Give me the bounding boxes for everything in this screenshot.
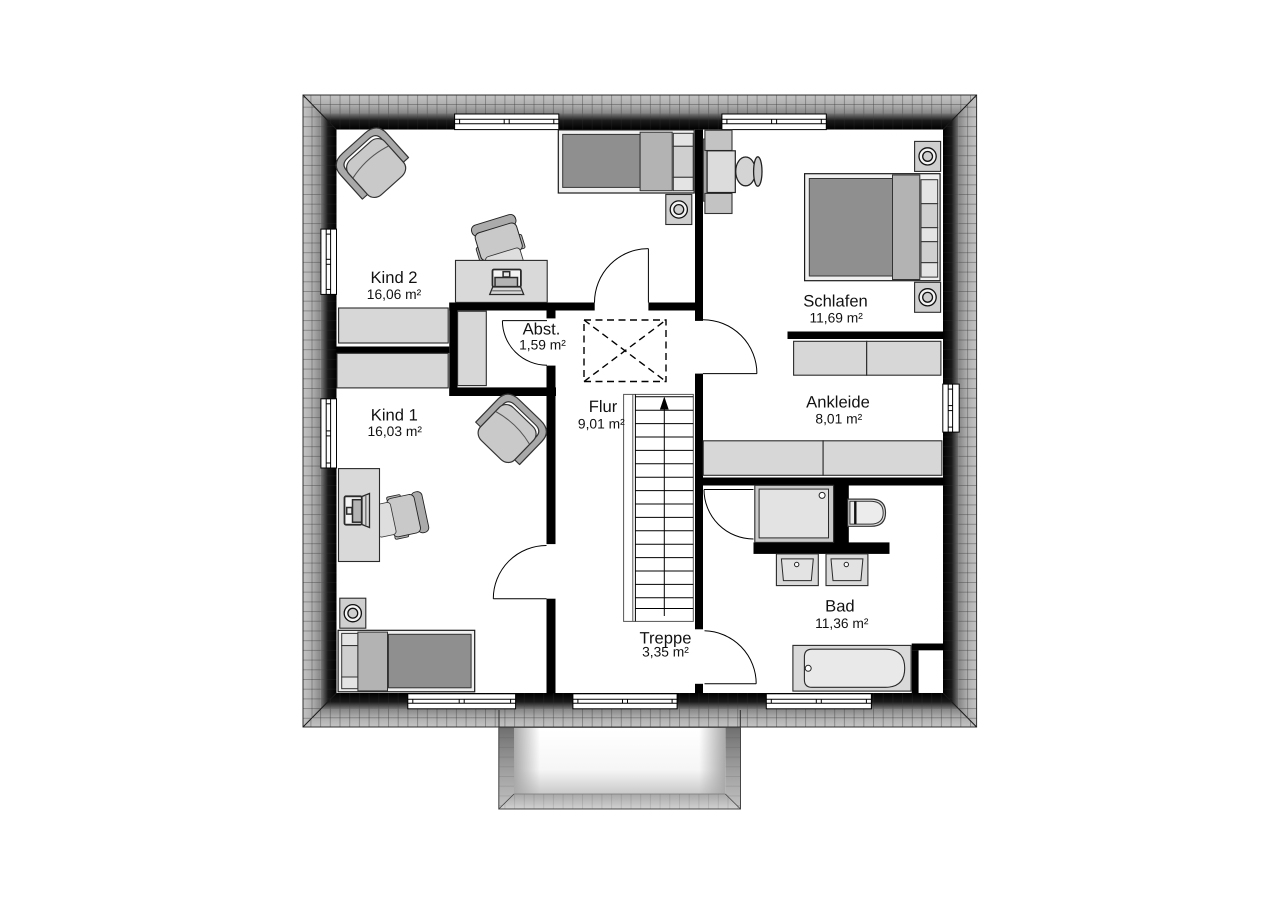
svg-text:Kind 1: Kind 1	[371, 405, 418, 424]
svg-text:1,59 m²: 1,59 m²	[519, 338, 566, 353]
svg-text:11,36 m²: 11,36 m²	[815, 616, 869, 631]
svg-text:Bad: Bad	[825, 596, 855, 615]
svg-text:Ankleide: Ankleide	[806, 393, 870, 412]
svg-text:16,06 m²: 16,06 m²	[367, 287, 422, 302]
svg-text:16,03 m²: 16,03 m²	[367, 424, 422, 439]
svg-text:Flur: Flur	[589, 397, 618, 416]
svg-text:Abst.: Abst.	[523, 319, 561, 338]
svg-text:11,69 m²: 11,69 m²	[809, 310, 863, 325]
svg-text:3,35 m²: 3,35 m²	[642, 644, 689, 659]
svg-text:9,01 m²: 9,01 m²	[578, 417, 625, 432]
svg-text:8,01 m²: 8,01 m²	[815, 412, 862, 427]
svg-text:Kind 2: Kind 2	[370, 268, 417, 287]
svg-text:Schlafen: Schlafen	[803, 292, 868, 311]
